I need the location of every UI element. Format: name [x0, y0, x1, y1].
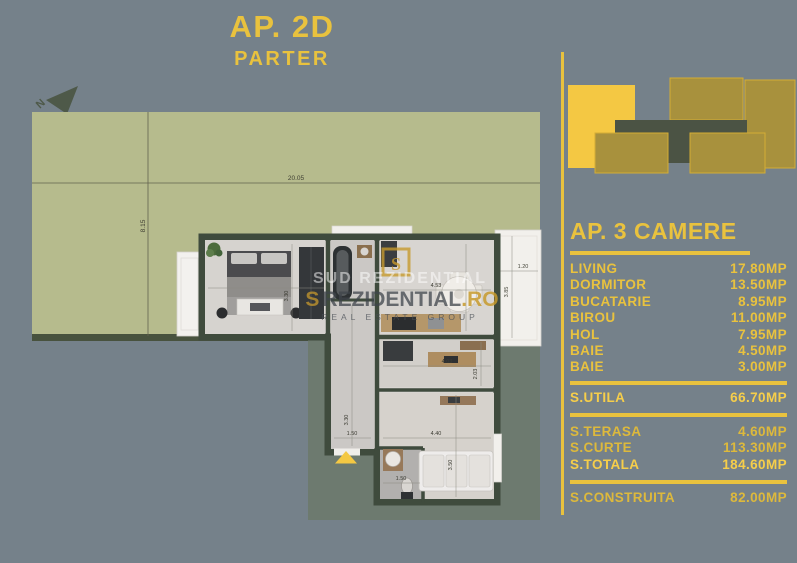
- terrace-right: 1.20 3.85: [495, 230, 541, 346]
- building-block: [690, 133, 765, 173]
- watermark-tagline: REAL ESTATE GROUP: [321, 312, 479, 322]
- building-diagram: [568, 75, 797, 175]
- outdoor-value: 113.30MP: [723, 440, 787, 455]
- utila-label: S.UTILA: [570, 390, 625, 405]
- room-value: 13.50MP: [730, 277, 787, 292]
- outdoor-row: S.TOTALA 184.60MP: [570, 457, 787, 473]
- utila-block: S.UTILA 66.70MP: [570, 390, 787, 406]
- divider: [570, 480, 787, 484]
- dim-living-w: 4.40: [431, 431, 442, 437]
- outdoor-label: S.TOTALA: [570, 457, 639, 472]
- dim-lawn-width: 20.05: [288, 175, 305, 182]
- divider: [570, 413, 787, 417]
- dim-birou-h: 2.03: [473, 369, 479, 380]
- room-value: 7.95MP: [738, 327, 787, 342]
- utila-row: S.UTILA 66.70MP: [570, 390, 787, 406]
- dim-hall: 3.30: [344, 415, 350, 426]
- construita-block: S.CONSTRUITA 82.00MP: [570, 490, 787, 506]
- room-row: BAIE 3.00MP: [570, 359, 787, 375]
- room-label: BAIE: [570, 343, 604, 358]
- room-value: 11.00MP: [731, 310, 787, 325]
- room-label: LIVING: [570, 261, 617, 276]
- dim-terrace-width: 1.20: [518, 264, 529, 270]
- outdoor-block: S.TERASA 4.60MP S.CURTE 113.30MP S.TOTAL…: [570, 424, 787, 473]
- construita-value: 82.00MP: [730, 490, 787, 505]
- utila-value: 66.70MP: [730, 390, 787, 405]
- construita-row: S.CONSTRUITA 82.00MP: [570, 490, 787, 506]
- construita-label: S.CONSTRUITA: [570, 490, 675, 505]
- watermark-mark2: S: [305, 288, 319, 311]
- divider: [570, 381, 787, 385]
- room-row: LIVING 17.80MP: [570, 261, 787, 277]
- room-list: LIVING 17.80MP DORMITOR 13.50MP BUCATARI…: [570, 261, 787, 376]
- outdoor-label: S.CURTE: [570, 440, 632, 455]
- building-block: [670, 78, 743, 120]
- tv-unit: [440, 396, 476, 405]
- terrace-left: [177, 252, 202, 336]
- room-label: BUCATARIE: [570, 294, 651, 309]
- living-door: [494, 434, 502, 482]
- building-block: [595, 133, 668, 173]
- room-value: 4.50MP: [738, 343, 787, 358]
- watermark-top-line: SUD REZIDENTIAL: [313, 270, 487, 287]
- room-label: DORMITOR: [570, 277, 646, 292]
- room-row: BIROU 11.00MP: [570, 310, 787, 326]
- panel-gold-bar: [561, 52, 564, 515]
- watermark-brand-line: SREZIDENTIAL.RO: [305, 288, 498, 311]
- dim-bath: 1.50: [396, 476, 407, 482]
- divider: [570, 251, 750, 255]
- dim-bedroom: 3.30: [284, 291, 290, 302]
- room-label: BIROU: [570, 310, 616, 325]
- room-label: BAIE: [570, 359, 604, 374]
- room-row: DORMITOR 13.50MP: [570, 277, 787, 293]
- room-row: BAIE 4.50MP: [570, 343, 787, 359]
- room-row: BUCATARIE 8.95MP: [570, 294, 787, 310]
- outdoor-value: 4.60MP: [738, 424, 787, 439]
- room-value: 17.80MP: [730, 261, 787, 276]
- dim-living-h: 3.50: [448, 460, 454, 471]
- room-value: 8.95MP: [738, 294, 787, 309]
- north-label: N: [34, 97, 48, 111]
- watermark-tld: .RO: [461, 288, 498, 311]
- outdoor-row: S.CURTE 113.30MP: [570, 440, 787, 456]
- room-label: HOL: [570, 327, 600, 342]
- watermark-brand: REZIDENTIAL: [322, 288, 461, 311]
- details-panel: AP. 3 CAMERE LIVING 17.80MP DORMITOR 13.…: [561, 0, 797, 563]
- outdoor-label: S.TERASA: [570, 424, 641, 439]
- floorplan-page: AP. 2D PARTER N 20.05 8.15 1.: [0, 0, 797, 563]
- north-arrow-icon: N: [34, 86, 78, 114]
- room-row: HOL 7.95MP: [570, 327, 787, 343]
- floorplan-drawing: N 20.05 8.15 1.20 3.85: [0, 0, 560, 563]
- outdoor-row: S.TERASA 4.60MP: [570, 424, 787, 440]
- dim-birou-w: 4.03: [442, 359, 453, 365]
- dim-terrace-height: 3.85: [504, 287, 510, 298]
- dim-lawn-height: 8.15: [140, 219, 147, 232]
- outdoor-value: 184.60MP: [722, 457, 787, 472]
- bed: [217, 251, 302, 319]
- room-value: 3.00MP: [738, 359, 787, 374]
- panel-heading: AP. 3 CAMERE: [570, 218, 737, 245]
- dim-entry: 1.50: [347, 431, 358, 437]
